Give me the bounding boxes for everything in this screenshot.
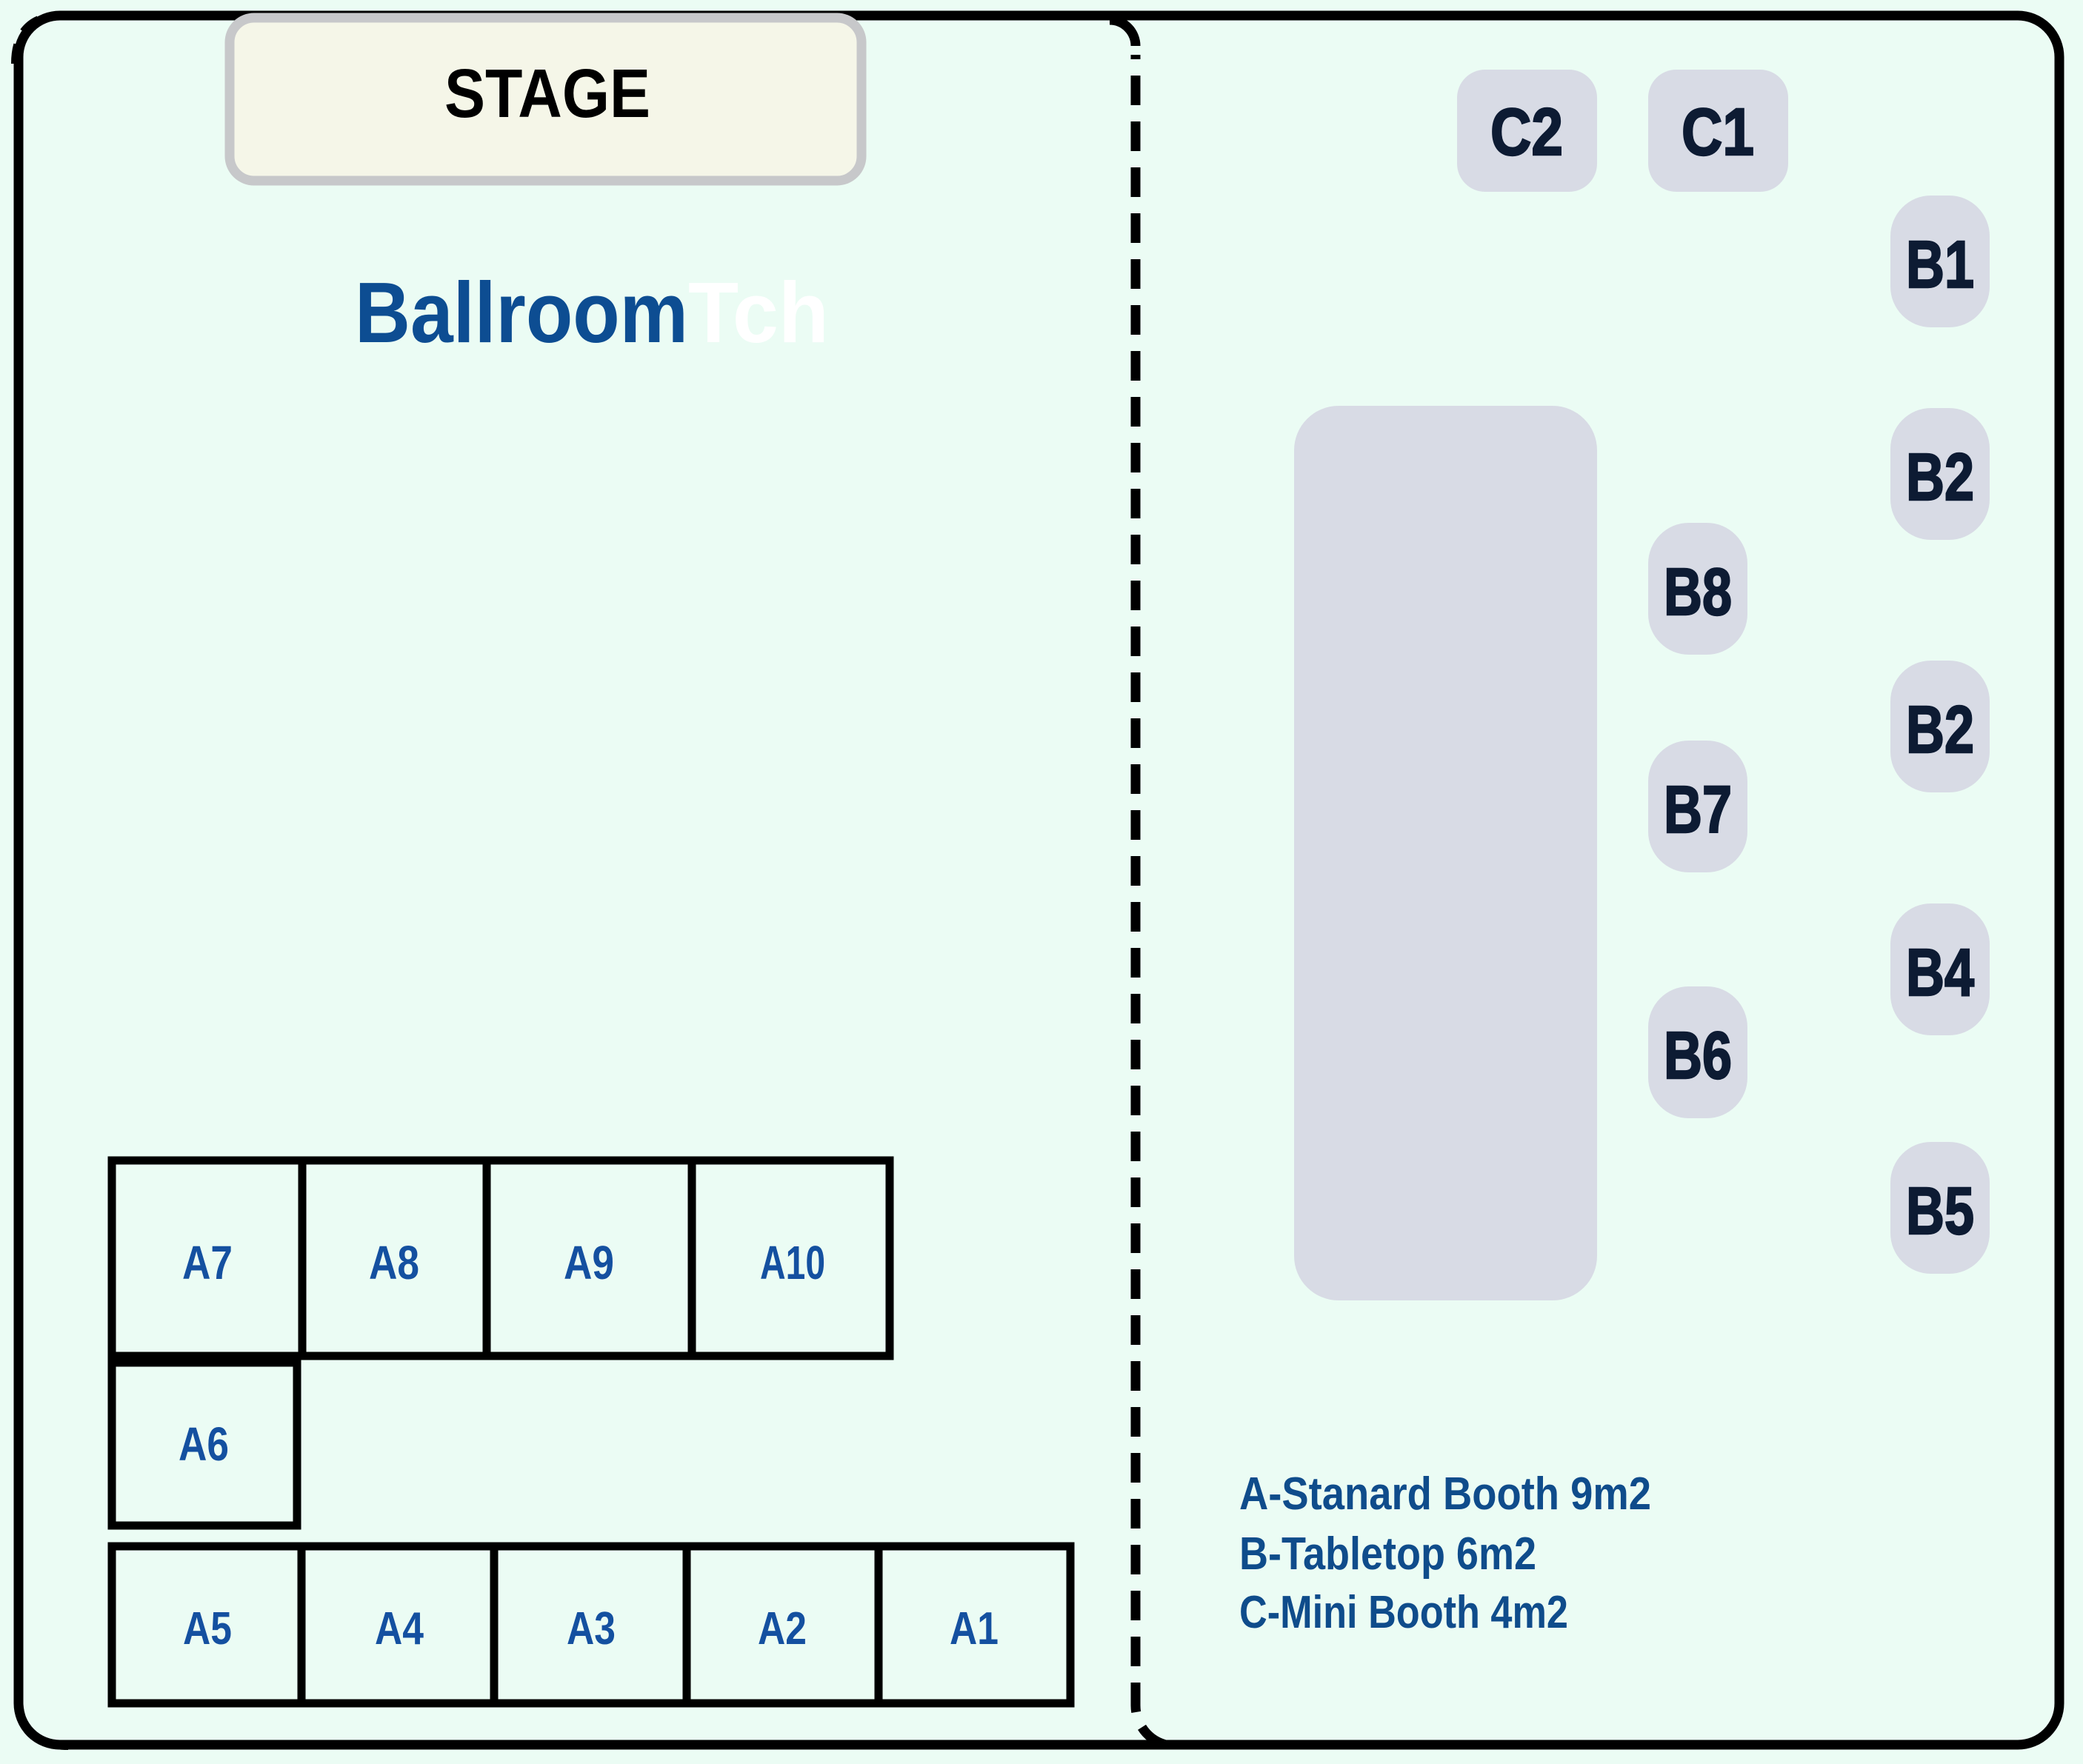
svg-text:Ballroom: Ballroom bbox=[355, 264, 688, 361]
svg-text:B5: B5 bbox=[1906, 1175, 1974, 1249]
svg-text:A1: A1 bbox=[950, 1603, 999, 1654]
svg-text:C-Mini Booth 4m2: C-Mini Booth 4m2 bbox=[1239, 1587, 1568, 1638]
svg-text:A8: A8 bbox=[369, 1236, 419, 1289]
svg-text:A4: A4 bbox=[375, 1603, 424, 1654]
svg-text:B4: B4 bbox=[1906, 936, 1974, 1010]
svg-text:Tch: Tch bbox=[688, 264, 829, 361]
svg-text:C1: C1 bbox=[1682, 96, 1754, 170]
svg-text:B1: B1 bbox=[1906, 228, 1974, 302]
svg-text:B7: B7 bbox=[1664, 773, 1732, 847]
svg-text:A6: A6 bbox=[179, 1417, 229, 1471]
svg-text:A9: A9 bbox=[564, 1236, 614, 1289]
svg-text:B2: B2 bbox=[1906, 441, 1974, 515]
svg-text:B2: B2 bbox=[1906, 693, 1974, 767]
svg-text:B-Tabletop 6m2: B-Tabletop 6m2 bbox=[1239, 1529, 1536, 1580]
svg-text:STAGE: STAGE bbox=[444, 55, 650, 132]
svg-text:A10: A10 bbox=[760, 1236, 825, 1289]
svg-text:A2: A2 bbox=[758, 1603, 807, 1654]
svg-text:A5: A5 bbox=[183, 1603, 232, 1654]
svg-text:C2: C2 bbox=[1490, 96, 1563, 170]
svg-text:A3: A3 bbox=[567, 1603, 616, 1654]
svg-text:B8: B8 bbox=[1664, 555, 1732, 629]
svg-text:A-Stanard Booth 9m2: A-Stanard Booth 9m2 bbox=[1239, 1469, 1651, 1520]
svg-text:B6: B6 bbox=[1664, 1019, 1732, 1093]
svg-text:A7: A7 bbox=[182, 1236, 233, 1289]
